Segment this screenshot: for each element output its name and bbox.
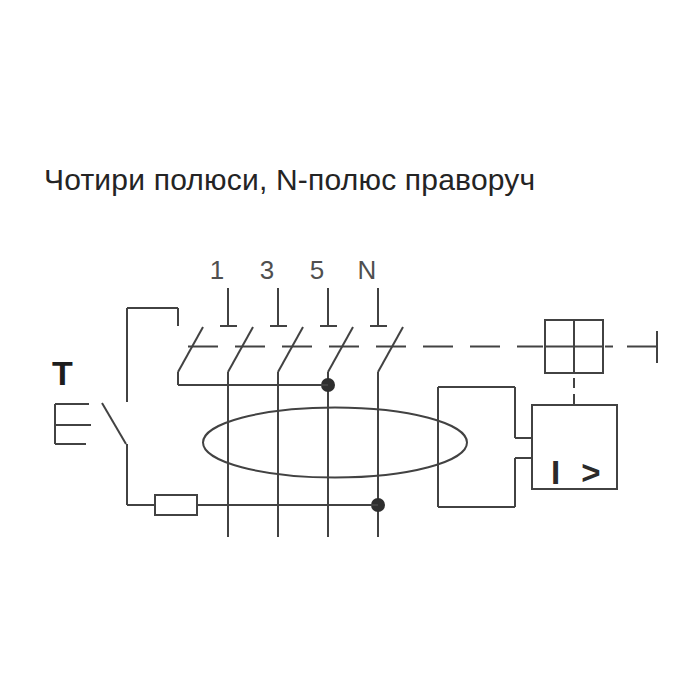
pole-label-1: 1 [210,255,224,285]
ct-secondary-box [438,387,532,507]
residual-relay: I > [532,405,617,491]
test-button-contact-blade [102,403,126,444]
pole-1-switch-blade [228,327,253,372]
test-button-label: T [52,354,73,392]
ct-core-ellipse [203,408,467,478]
test-circuit: T [52,308,378,515]
pole-3-switch-blade [278,327,303,372]
current-transformer [203,387,532,507]
pole-3: 3 [260,255,303,537]
mechanism-box [545,320,603,373]
relay-label: I > [551,454,607,491]
test-contact-blade [178,327,203,372]
pole-5-switch-blade [328,327,353,372]
pole-1: 1 [210,255,253,537]
pole-label-5: 5 [310,255,324,285]
pole-label-n: N [358,255,377,285]
pole-5: 5 [310,255,353,537]
pole-label-3: 3 [260,255,274,285]
circuit-diagram: 1 3 5 N [0,0,700,700]
test-resistor [155,495,197,515]
test-button [55,403,126,444]
figure: Чотири полюси, N-полюс праворуч 1 3 5 [0,0,700,700]
pole-n: N [358,255,403,537]
pole-n-switch-blade [378,327,403,372]
